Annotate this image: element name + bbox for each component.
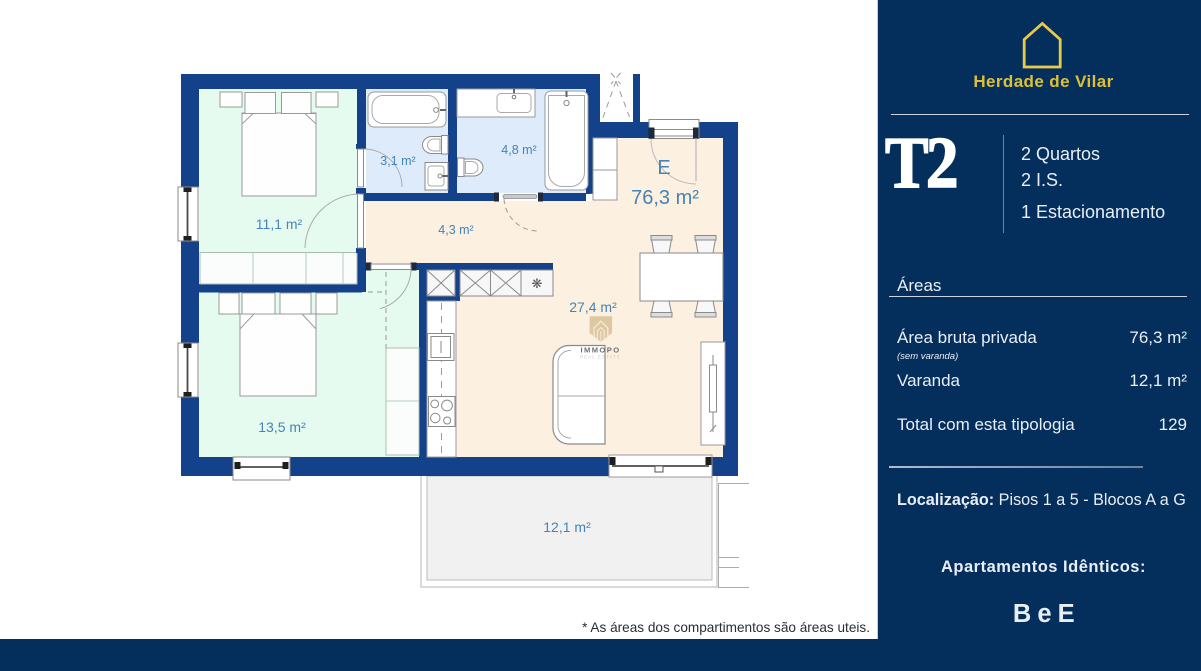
svg-text:4,8 m²: 4,8 m² <box>501 143 536 157</box>
svg-text:4,3 m²: 4,3 m² <box>438 223 473 237</box>
svg-text:76,3 m²: 76,3 m² <box>631 187 699 209</box>
svg-text:REAL ESTATE: REAL ESTATE <box>580 355 621 360</box>
svg-text:IMMOPO: IMMOPO <box>580 346 620 355</box>
svg-text:* As áreas dos compartimentos: * As áreas dos compartimentos são áreas … <box>582 620 870 635</box>
svg-text:12,1 m²: 12,1 m² <box>543 519 591 535</box>
svg-text:27,4 m²: 27,4 m² <box>569 299 617 315</box>
svg-text:E: E <box>657 157 670 179</box>
svg-text:13,5 m²: 13,5 m² <box>258 419 306 435</box>
svg-text:❋: ❋ <box>532 276 543 291</box>
svg-text:11,1 m²: 11,1 m² <box>256 216 303 232</box>
svg-text:3,1 m²: 3,1 m² <box>380 154 415 168</box>
